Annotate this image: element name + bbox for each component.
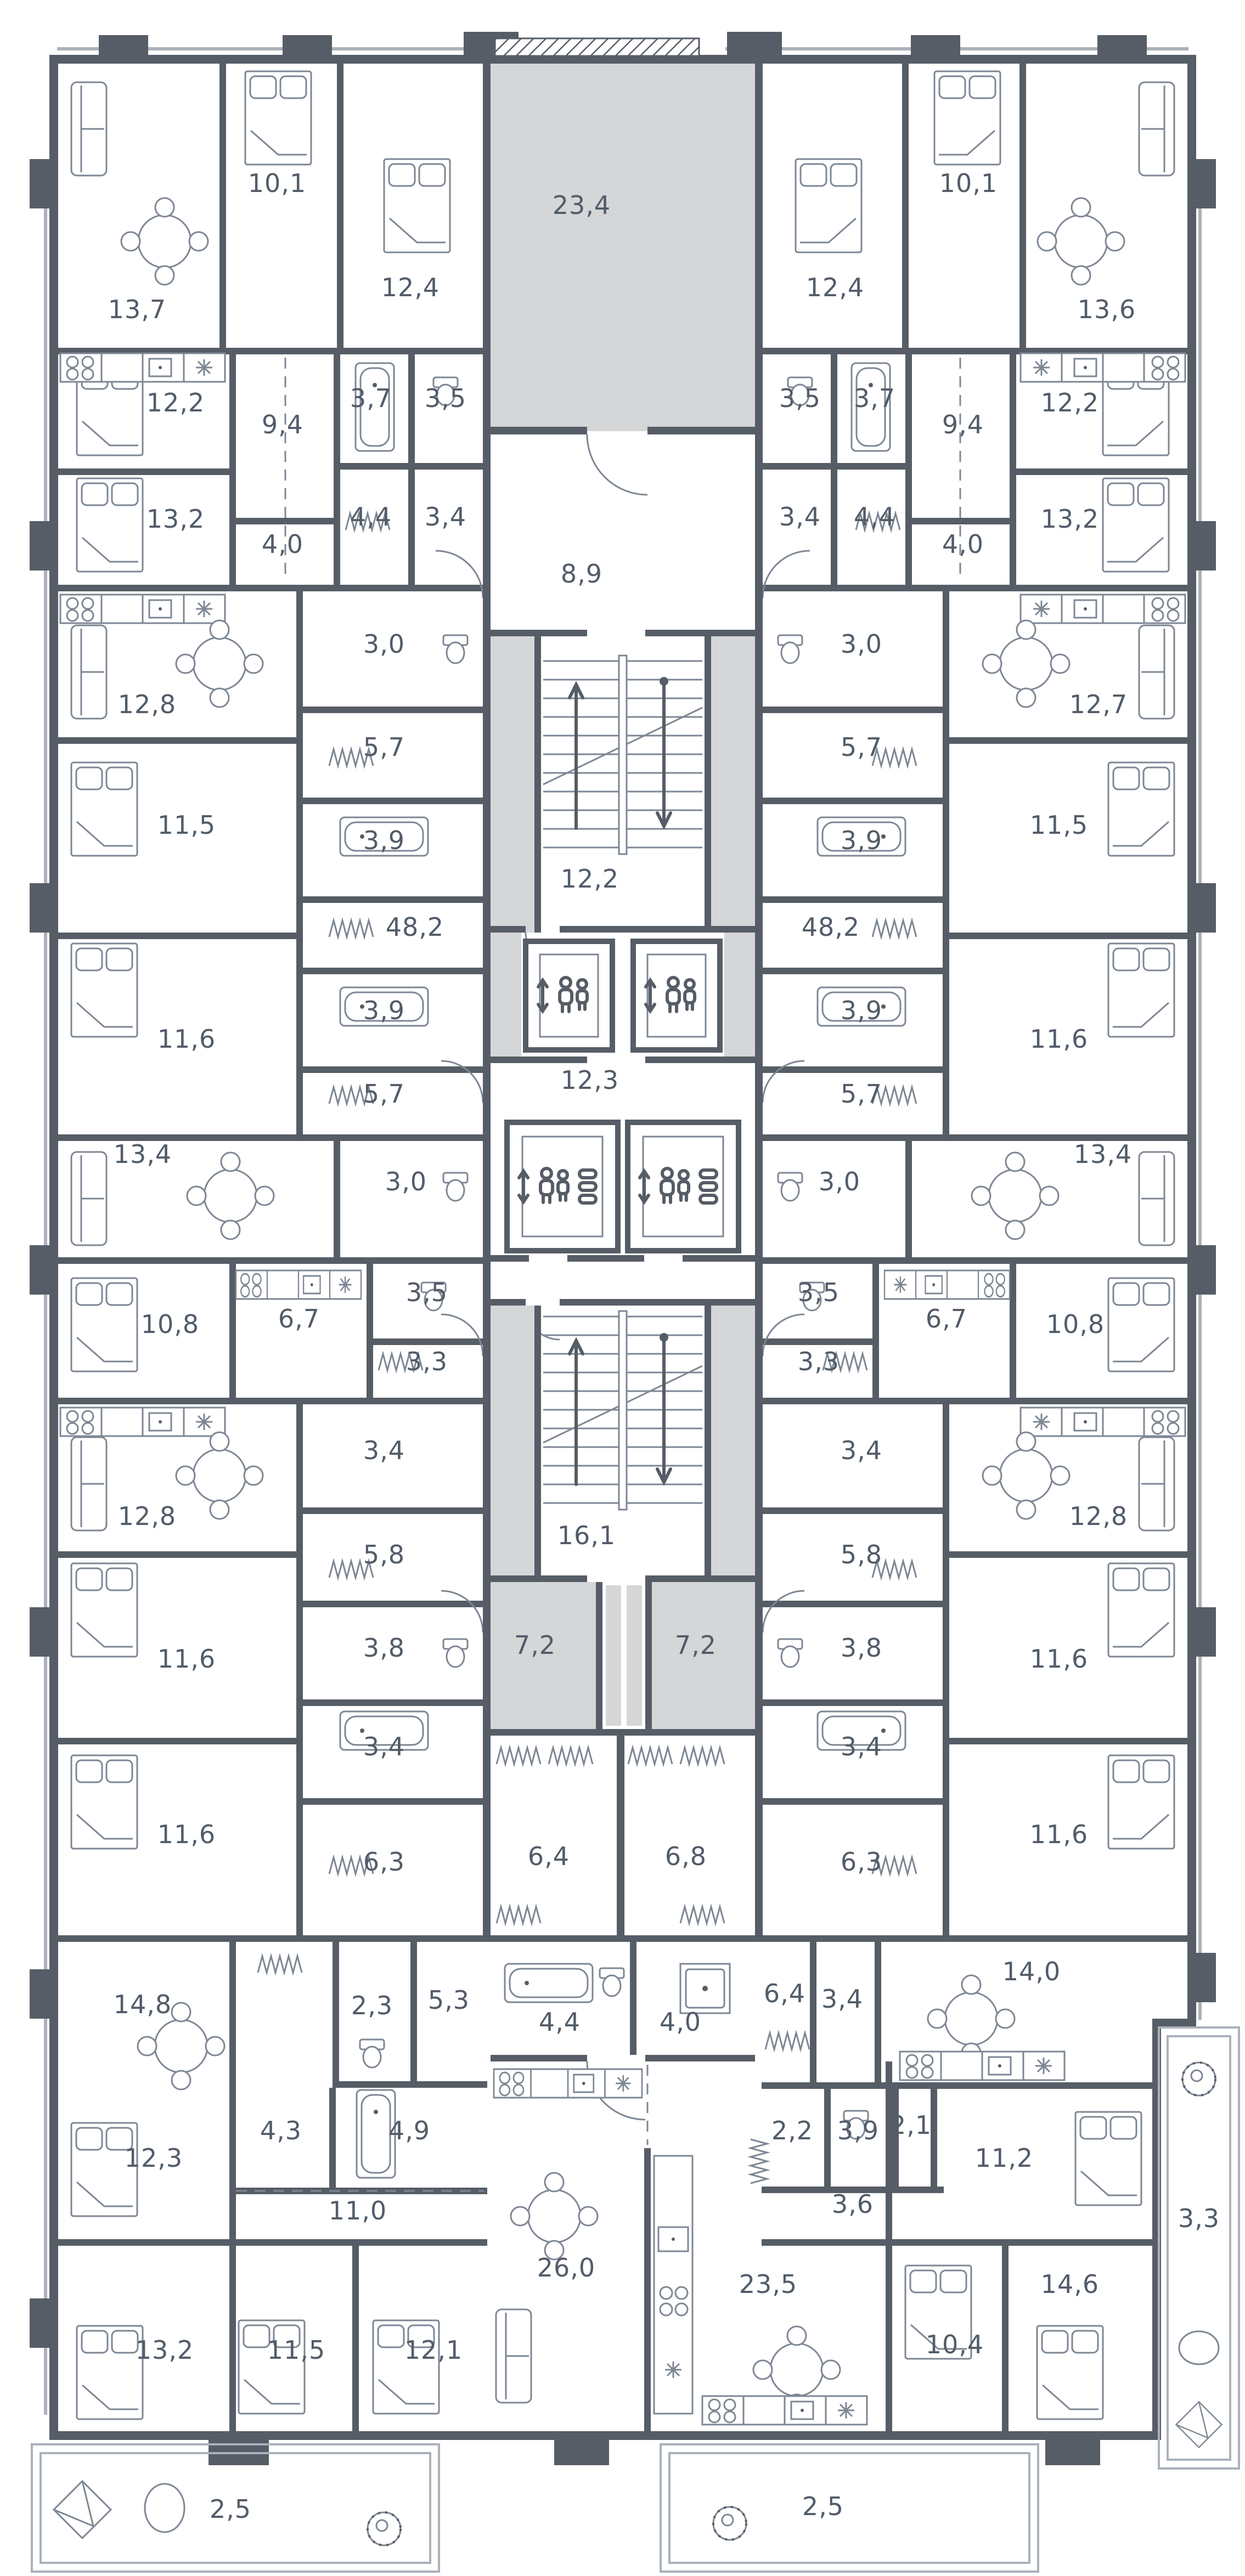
room-area-label: 3,9 — [363, 996, 405, 1025]
room-area-label: 10,1 — [248, 168, 306, 198]
room-area-label: 11,5 — [1030, 810, 1088, 840]
room-area-label: 48,2 — [802, 912, 860, 942]
room-area-label: 3,5 — [425, 383, 466, 413]
room-area-label: 3,0 — [385, 1167, 427, 1196]
room-area-label: 11,2 — [975, 2143, 1033, 2173]
room-area-label: 11,6 — [1030, 1644, 1088, 1674]
room-area-label: 3,4 — [841, 1732, 882, 1761]
balconies — [32, 2027, 1239, 2572]
room-area-label: 14,0 — [1002, 1957, 1061, 1986]
room-area-label: 3,4 — [779, 502, 821, 532]
room-area-label: 5,7 — [841, 732, 882, 762]
room-area-label: 11,6 — [1030, 1820, 1088, 1849]
room-area-label: 16,1 — [557, 1521, 616, 1550]
room-area-label: 12,8 — [118, 690, 176, 719]
room-area-label: 11,6 — [157, 1024, 216, 1054]
room-area-label: 9,4 — [262, 410, 303, 439]
room-area-label: 12,3 — [561, 1065, 619, 1095]
room-area-label: 11,5 — [157, 810, 216, 840]
room-area-label: 3,3 — [798, 1347, 840, 1376]
room-area-label: 6,4 — [528, 1841, 570, 1871]
stairwell-upper — [491, 636, 755, 967]
room-area-label: 6,3 — [841, 1847, 882, 1877]
room-area-label: 5,7 — [363, 1079, 405, 1109]
room-area-label: 6,8 — [665, 1841, 707, 1871]
elevator-lobby — [491, 64, 755, 431]
room-area-label: 4,3 — [260, 2116, 302, 2145]
room-area-label: 8,9 — [561, 559, 602, 589]
room-area-label: 5,7 — [841, 1079, 882, 1109]
room-area-label: 13,7 — [108, 295, 166, 324]
room-area-label: 4,4 — [854, 502, 895, 532]
room-area-label: 23,4 — [553, 190, 611, 220]
room-area-label: 3,4 — [821, 1984, 863, 2014]
balcony-bottom-center — [661, 2444, 1038, 2572]
stairs-icon — [543, 1311, 702, 1510]
floor-plan-svg: 13,710,112,49,43,73,512,24,43,413,24,012… — [0, 0, 1245, 2576]
room-area-label: 12,8 — [1069, 1501, 1128, 1531]
room-area-label: 10,4 — [926, 2330, 984, 2359]
room-area-label: 3,0 — [841, 629, 882, 659]
room-area-label: 6,3 — [363, 1847, 405, 1877]
room-area-label: 2,3 — [351, 1991, 393, 2020]
room-area-label: 3,7 — [350, 383, 392, 413]
room-area-label: 9,4 — [942, 410, 984, 439]
room-area-label: 4,0 — [660, 2007, 701, 2037]
room-area-label: 5,8 — [841, 1540, 882, 1569]
stairwell-lower — [491, 1306, 755, 1582]
room-area-label: 10,8 — [1046, 1309, 1105, 1339]
room-area-label: 3,3 — [1178, 2204, 1220, 2233]
room-area-label: 11,5 — [267, 2335, 325, 2365]
room-area-label: 13,4 — [114, 1139, 172, 1169]
room-area-label: 3,9 — [837, 2116, 879, 2145]
room-area-label: 26,0 — [537, 2253, 595, 2283]
stairs-icon — [543, 656, 702, 854]
room-area-label: 5,7 — [363, 732, 405, 762]
room-area-label: 3,4 — [363, 1732, 405, 1761]
room-area-label: 5,3 — [428, 1985, 470, 2015]
room-area-label: 4,0 — [262, 529, 303, 559]
room-area-label: 23,5 — [739, 2269, 797, 2299]
room-area-label: 13,2 — [147, 504, 205, 534]
room-area-label: 10,1 — [939, 168, 998, 198]
room-area-label: 12,2 — [1041, 388, 1099, 417]
room-area-label: 6,7 — [926, 1304, 967, 1334]
room-area-label: 12,7 — [1069, 690, 1128, 719]
room-area-label: 4,9 — [388, 2116, 430, 2145]
room-area-label: 12,8 — [118, 1501, 176, 1531]
room-area-label: 3,3 — [406, 1347, 448, 1376]
room-area-label: 3,4 — [425, 502, 466, 532]
room-area-label: 4,4 — [539, 2007, 581, 2037]
room-area-label: 10,8 — [141, 1309, 199, 1339]
room-area-label: 48,2 — [386, 912, 444, 942]
room-area-label: 2,1 — [890, 2110, 932, 2140]
room-area-label: 4,4 — [350, 502, 392, 532]
right-wing — [758, 55, 1187, 1942]
room-area-label: 12,4 — [806, 273, 864, 302]
room-area-label: 3,5 — [779, 383, 821, 413]
left-wing — [58, 55, 487, 1942]
balcony-right — [1159, 2027, 1239, 2468]
room-area-label: 4,0 — [942, 529, 984, 559]
room-area-label: 12,1 — [404, 2335, 463, 2365]
room-area-label: 3,0 — [819, 1167, 860, 1196]
room-area-label: 3,6 — [832, 2189, 874, 2219]
room-area-label: 3,0 — [363, 629, 405, 659]
passenger-elevators — [491, 933, 755, 1063]
room-area-label: 3,8 — [841, 1633, 882, 1663]
wardrobe-rooms — [491, 1736, 755, 1942]
room-area-label: 2,2 — [771, 2116, 813, 2145]
room-area-label: 3,5 — [406, 1278, 448, 1307]
room-area-label: 3,5 — [798, 1278, 840, 1307]
room-area-label: 12,2 — [147, 388, 205, 417]
room-area-label: 2,5 — [802, 2492, 844, 2521]
room-area-label: 3,4 — [363, 1436, 405, 1465]
room-area-label: 14,8 — [114, 1990, 172, 2019]
floor-plan: 13,710,112,49,43,73,512,24,43,413,24,012… — [0, 0, 1245, 2576]
room-area-label: 11,0 — [329, 2196, 387, 2225]
room-area-label: 3,9 — [841, 996, 882, 1025]
room-area-label: 13,6 — [1078, 295, 1136, 324]
room-area-label: 7,2 — [514, 1630, 556, 1660]
room-area-label: 5,8 — [363, 1540, 405, 1569]
room-area-label: 3,9 — [363, 826, 405, 855]
room-area-label: 12,3 — [125, 2143, 183, 2173]
room-area-label: 14,6 — [1041, 2269, 1099, 2299]
room-area-label: 12,2 — [561, 864, 619, 894]
room-area-label: 11,6 — [1030, 1024, 1088, 1054]
room-area-label: 6,7 — [278, 1304, 320, 1334]
hatch-strip — [495, 38, 699, 56]
room-area-label: 3,4 — [841, 1436, 882, 1465]
room-area-label: 3,9 — [841, 826, 882, 855]
bottom-center-rooms — [494, 2061, 892, 2431]
room-area-label: 3,8 — [363, 1633, 405, 1663]
room-area-label: 7,2 — [675, 1630, 717, 1660]
room-area-label: 2,5 — [210, 2494, 251, 2524]
room-area-label: 11,6 — [157, 1820, 216, 1849]
room-area-label: 13,2 — [1041, 504, 1099, 534]
room-area-label: 12,4 — [381, 273, 440, 302]
room-area-label: 6,4 — [764, 1979, 805, 2008]
room-area-label: 13,2 — [136, 2335, 194, 2365]
room-area-label: 3,7 — [854, 383, 895, 413]
room-area-label: 13,4 — [1074, 1139, 1132, 1169]
room-area-label: 11,6 — [157, 1644, 216, 1674]
